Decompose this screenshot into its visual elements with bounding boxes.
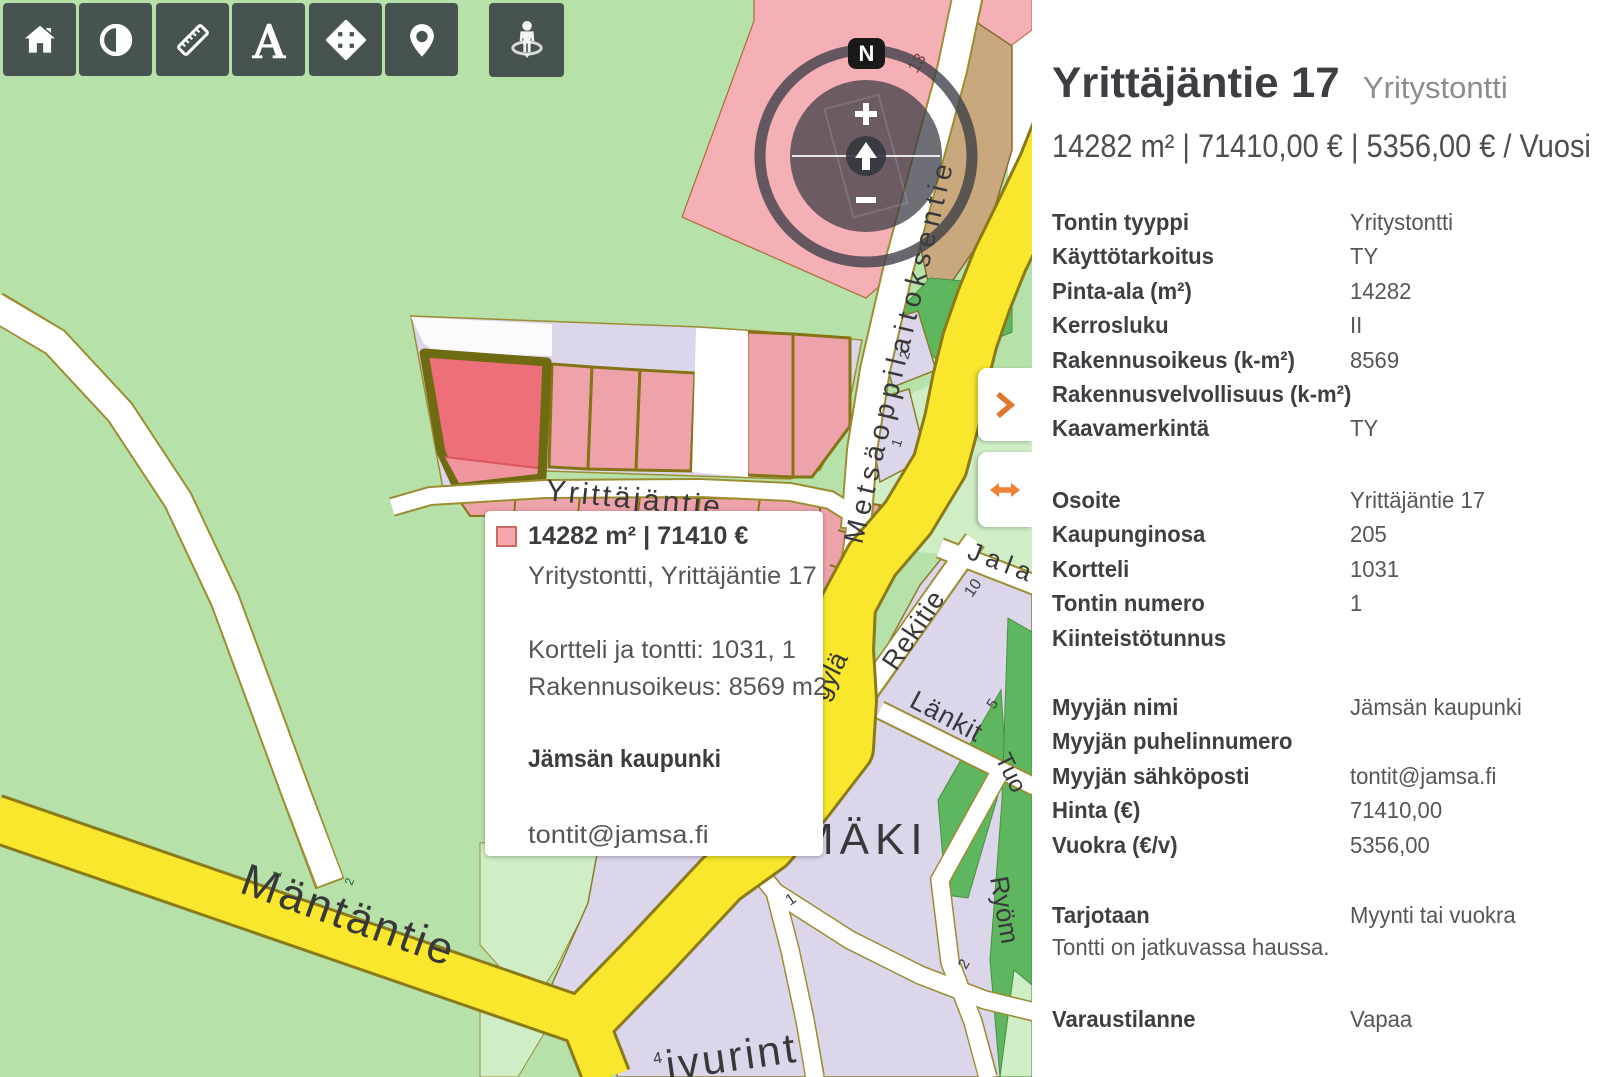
svg-text:N: N [859, 41, 875, 66]
